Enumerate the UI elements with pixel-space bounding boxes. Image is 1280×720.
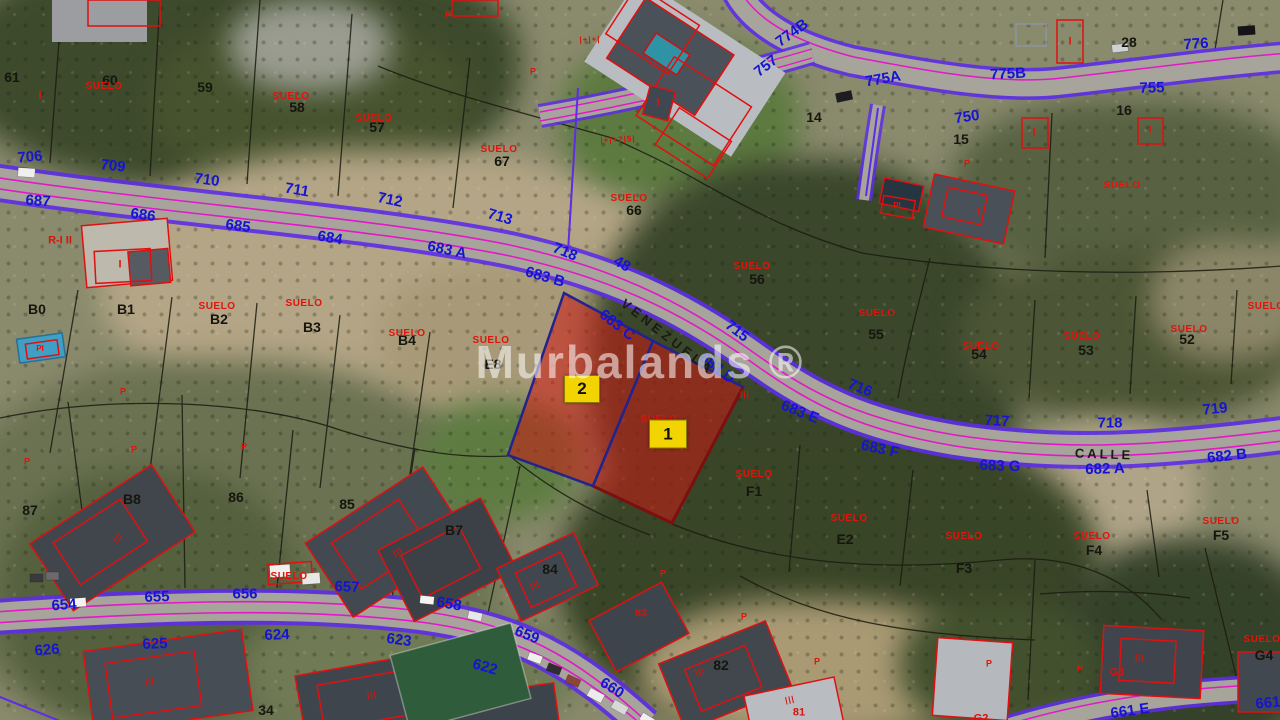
road-number-label: 712 bbox=[376, 190, 404, 210]
road-number-label: 660 bbox=[597, 675, 626, 701]
road-number-label: 48 bbox=[611, 253, 633, 274]
red-hatch-mark: ||| bbox=[145, 677, 156, 686]
road-number-label: 622 bbox=[471, 656, 499, 677]
parcel-number-label: 85 bbox=[339, 497, 355, 511]
road-number-label: 625 bbox=[142, 636, 168, 652]
road-number-label: 655 bbox=[144, 589, 170, 605]
road-number-label: 711 bbox=[284, 181, 310, 200]
suelo-label: SUELO bbox=[734, 262, 771, 272]
suelo-label: SUELO bbox=[1171, 325, 1208, 335]
suelo-label: SUELO bbox=[946, 532, 983, 542]
suelo-label: SUELO bbox=[963, 342, 1000, 352]
p-mark: P bbox=[814, 658, 820, 667]
building-i-mark: I bbox=[118, 260, 121, 271]
pool-pi-mark: PI bbox=[893, 202, 901, 210]
red-hatch-mark: ||| bbox=[392, 546, 404, 558]
suelo-label: SUELO bbox=[1074, 532, 1111, 542]
p-mark: P bbox=[241, 443, 247, 452]
road-number-label: 682 B bbox=[1206, 446, 1247, 465]
parcel-number-label: 66 bbox=[626, 203, 642, 217]
parcel-number-label: 28 bbox=[1121, 35, 1137, 49]
parcel-number-label: 86 bbox=[228, 490, 244, 504]
building-i-mark: I bbox=[1032, 128, 1035, 139]
parcel-number-label: 14 bbox=[806, 110, 822, 124]
red-parcel-label: 83 bbox=[635, 609, 647, 620]
parcel-number-label: 53 bbox=[1078, 343, 1094, 357]
road-number-label: 719 bbox=[1202, 400, 1228, 418]
suelo-label: SUELO bbox=[1064, 332, 1101, 342]
parcel-number-label: 59 bbox=[197, 80, 213, 94]
road-number-label: 683 F bbox=[860, 438, 901, 461]
road-number-label: 686 bbox=[130, 206, 157, 224]
road-number-label: 683 E bbox=[779, 398, 821, 427]
road-number-label: 755 bbox=[1139, 80, 1165, 96]
road-number-label: 654 bbox=[51, 597, 77, 614]
aerial-map: 70670971071171271371848687686685684683 A… bbox=[0, 0, 1280, 720]
red-parcel-label: 81 bbox=[793, 708, 805, 719]
parcel-number-label: 15 bbox=[953, 132, 969, 146]
road-number-label: 624 bbox=[264, 627, 290, 643]
p-mark: P bbox=[964, 160, 970, 169]
p-mark: P bbox=[530, 68, 536, 77]
road-number-label: 750 bbox=[954, 108, 981, 126]
p-mark: P bbox=[120, 388, 126, 397]
parcel-number-label: 87 bbox=[22, 503, 38, 517]
parcel-number-label: G4 bbox=[1255, 648, 1274, 662]
suelo-label: SUELO bbox=[481, 145, 518, 155]
parcel-number-label: 84 bbox=[542, 562, 558, 576]
parcel-number-label: F1 bbox=[746, 484, 762, 498]
road-number-label: 659 bbox=[513, 623, 542, 646]
road-number-label: 683 B bbox=[524, 264, 567, 289]
road-number-label: 775B bbox=[990, 66, 1027, 83]
p-mark: P bbox=[1077, 665, 1083, 674]
suelo-label: SUELO bbox=[831, 514, 868, 524]
red-hatch-mark: ||| bbox=[367, 690, 378, 700]
building-i-mark: I bbox=[1068, 37, 1071, 48]
suelo-label: SUELO bbox=[736, 470, 773, 480]
red-hatch-mark: |+|+2|5| bbox=[600, 135, 636, 145]
road-number-label: 684 bbox=[316, 228, 343, 247]
road-number-label: 718 bbox=[1097, 416, 1122, 431]
road-number-label: 710 bbox=[194, 171, 221, 189]
road-number-label: 774B bbox=[773, 16, 811, 49]
p-mark: P bbox=[131, 446, 137, 455]
road-number-label: 626 bbox=[34, 642, 60, 659]
suelo-label: SUELO bbox=[611, 194, 648, 204]
road-number-label: 656 bbox=[232, 587, 257, 602]
red-parcel-label: G2 bbox=[974, 714, 989, 720]
road-number-label: 716 bbox=[846, 376, 875, 399]
red-parcel-label: R-I II bbox=[48, 236, 72, 247]
parcel-number-label: B7 bbox=[445, 523, 463, 537]
building-i-mark: I bbox=[656, 98, 659, 109]
suelo-label: SUELO bbox=[86, 82, 123, 92]
p-mark: P bbox=[986, 660, 992, 669]
parcel-number-label: E2 bbox=[836, 532, 853, 546]
red-hatch-mark: ||| bbox=[784, 695, 795, 705]
parcel-badge-1: 1 bbox=[649, 420, 687, 449]
road-number-label: 658 bbox=[435, 594, 462, 613]
road-number-label: 682 A bbox=[1085, 461, 1125, 477]
p-mark: P bbox=[445, 11, 451, 20]
road-number-label: 706 bbox=[17, 148, 43, 165]
parcel-number-label: 16 bbox=[1116, 103, 1132, 117]
parcel-number-label: 56 bbox=[749, 272, 765, 286]
road-number-label: 661 E bbox=[1110, 701, 1151, 720]
p-mark: P bbox=[660, 570, 666, 579]
suelo-label: SUELO bbox=[1244, 635, 1280, 645]
building-i-mark: I bbox=[1148, 125, 1151, 136]
parcel-number-label: B3 bbox=[303, 320, 321, 334]
parcel-number-label: 67 bbox=[494, 154, 510, 168]
road-number-label: 685 bbox=[225, 217, 252, 235]
road-number-label: 683 G bbox=[979, 458, 1020, 474]
road-number-label: 661 bbox=[1255, 694, 1280, 711]
road-number-label: 757 bbox=[752, 52, 781, 79]
suelo-label: SUELO bbox=[389, 329, 426, 339]
road-number-label: 709 bbox=[100, 157, 126, 175]
road-number-label: 717 bbox=[984, 413, 1010, 429]
parcel-number-label: 58 bbox=[289, 100, 305, 114]
parcel-number-label: 61 bbox=[4, 70, 20, 84]
road-number-label: 683 A bbox=[426, 239, 468, 262]
parcel-number-label: B1 bbox=[117, 302, 135, 316]
suelo-label: SUELO bbox=[1104, 181, 1141, 191]
suelo-label: SUELO bbox=[356, 114, 393, 124]
road-number-label: 713 bbox=[486, 206, 514, 227]
red-hatch-mark: ||| bbox=[694, 666, 706, 677]
suelo-label: SUELO bbox=[199, 302, 236, 312]
suelo-label: SUELO bbox=[859, 309, 896, 319]
parcel-number-label: 55 bbox=[868, 327, 884, 341]
parcel-number-label: F5 bbox=[1213, 528, 1229, 542]
road-number-label: 623 bbox=[386, 631, 413, 649]
p-mark: P bbox=[24, 458, 30, 467]
parcel-number-label: F4 bbox=[1086, 543, 1102, 557]
road-number-label: 776 bbox=[1183, 36, 1209, 53]
street-name-label: CALLE bbox=[1075, 446, 1134, 461]
parcel-number-label: 82 bbox=[713, 658, 729, 672]
red-hatch-mark: ||| bbox=[112, 532, 125, 544]
suelo-label: SUELO bbox=[1248, 302, 1280, 312]
red-hatch-mark: ||| bbox=[529, 579, 541, 590]
parcel-number-label: B8 bbox=[123, 492, 141, 506]
road-number-label: 657 bbox=[334, 579, 360, 595]
watermark: Murbalands ® bbox=[476, 335, 805, 389]
suelo-label: SUELO bbox=[286, 299, 323, 309]
road-number-label: 718 bbox=[551, 240, 580, 263]
suelo-label: SUELO bbox=[271, 572, 308, 582]
building-i-mark: I bbox=[38, 91, 41, 102]
red-hatch-mark: |+|+| bbox=[579, 35, 600, 44]
parcel-number-label: B2 bbox=[210, 312, 228, 326]
red-hatch-mark: ||| bbox=[740, 391, 750, 399]
red-parcel-label: G3 bbox=[1110, 668, 1125, 679]
parcel-number-label: 34 bbox=[258, 703, 274, 717]
parcel-number-label: B0 bbox=[28, 302, 46, 316]
pool-pi-mark: PI bbox=[36, 345, 44, 353]
suelo-label: SUELO bbox=[1203, 517, 1240, 527]
red-hatch-mark: ||| bbox=[1135, 654, 1145, 662]
suelo-label: SUELO bbox=[273, 92, 310, 102]
road-number-label: 775A bbox=[864, 69, 902, 90]
parcel-number-label: F3 bbox=[956, 561, 972, 575]
building-i-mark: I bbox=[976, 207, 979, 218]
road-number-label: 687 bbox=[25, 193, 51, 210]
p-mark: P bbox=[741, 613, 747, 622]
